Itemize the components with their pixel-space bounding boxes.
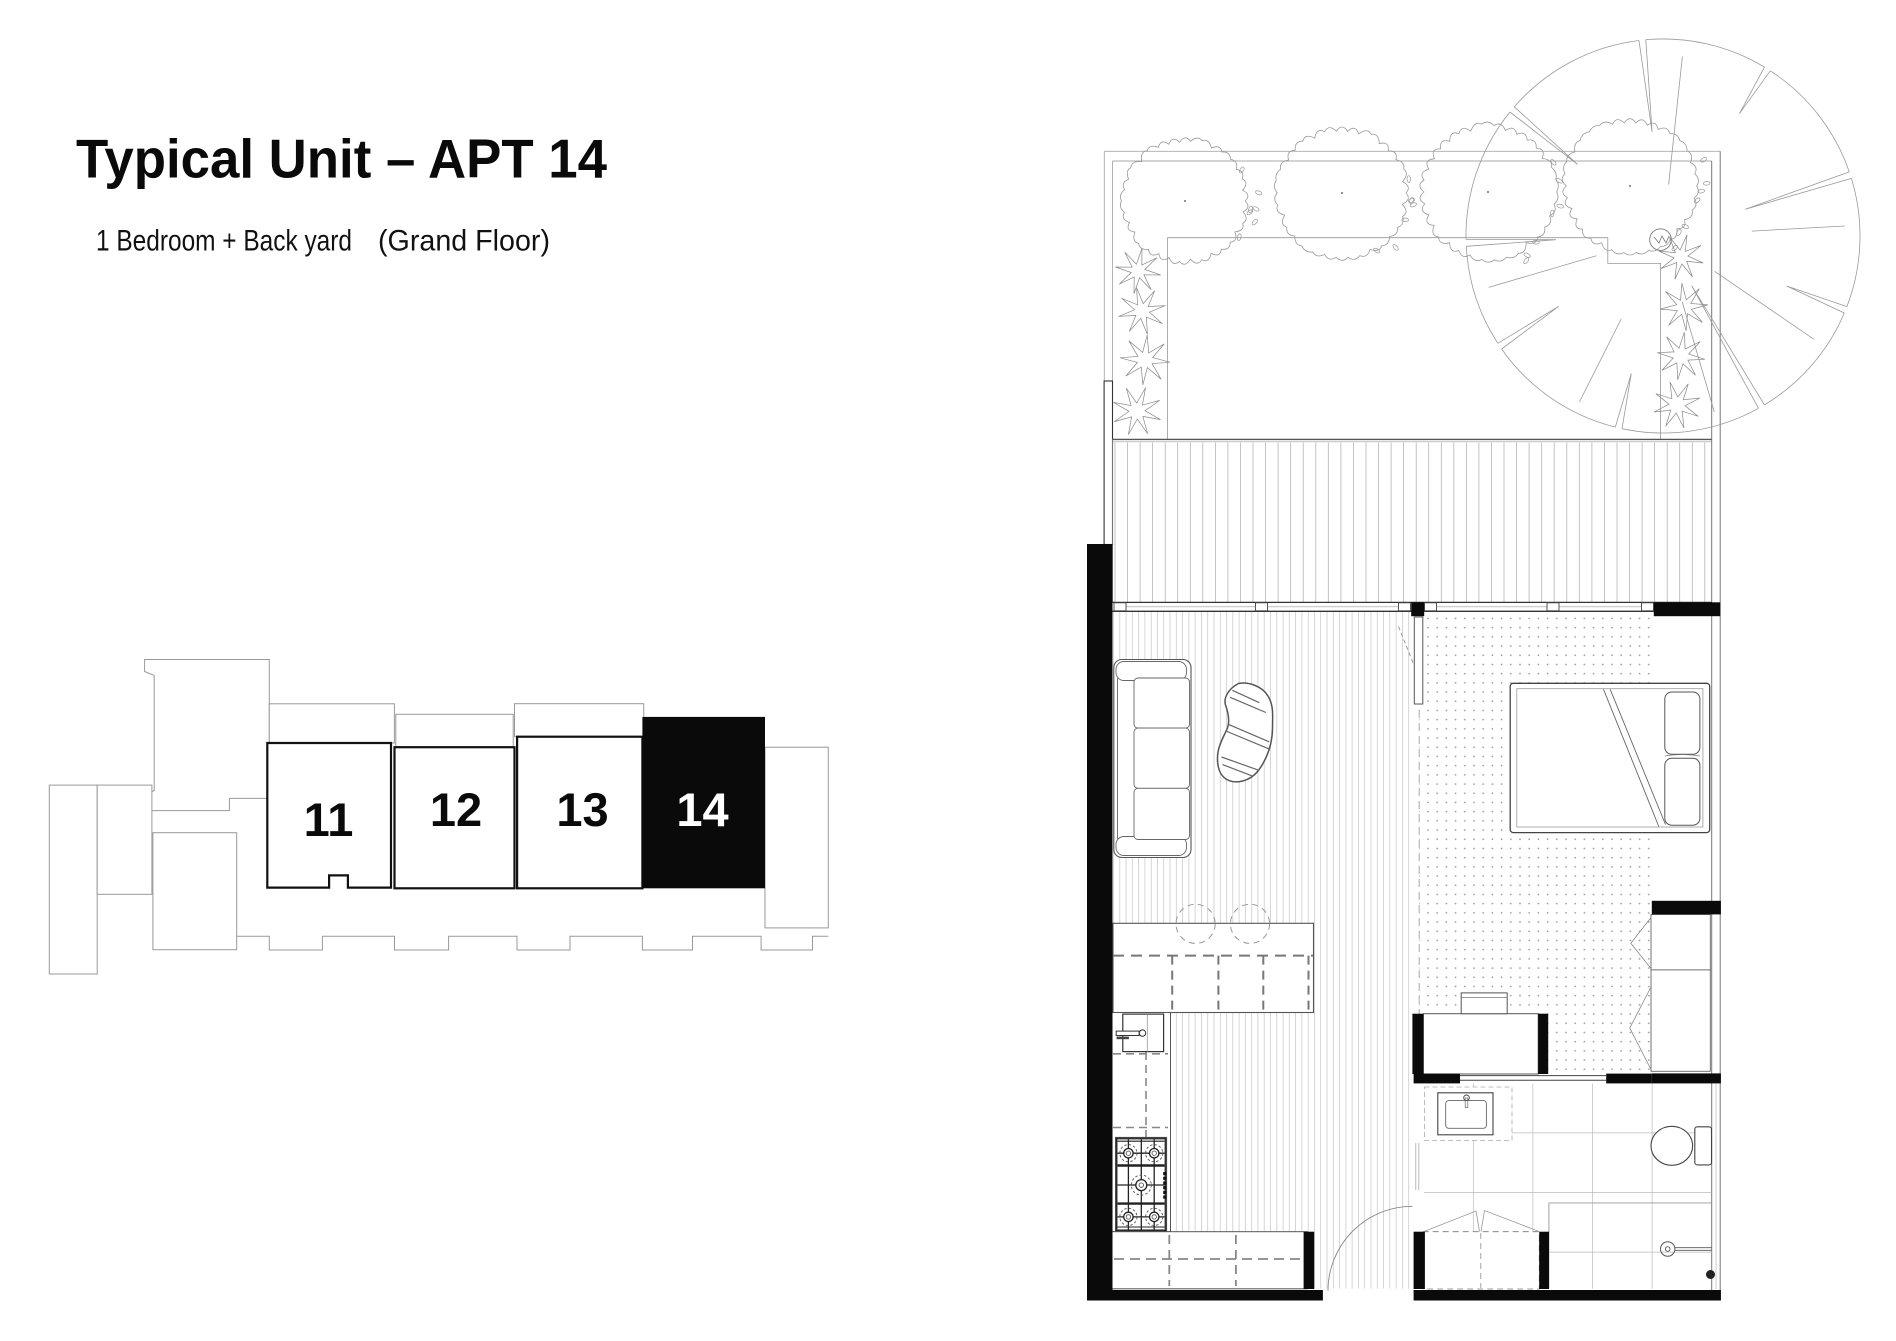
svg-text:11: 11 <box>304 793 354 846</box>
svg-text:1 Bedroom + Back yard: 1 Bedroom + Back yard <box>96 225 352 258</box>
svg-text:13: 13 <box>556 783 608 836</box>
svg-text:Typical Unit – APT 14: Typical Unit – APT 14 <box>76 128 607 190</box>
svg-text:12: 12 <box>430 783 482 836</box>
svg-text:(Grand Floor): (Grand Floor) <box>378 225 550 258</box>
svg-text:14: 14 <box>676 783 728 836</box>
